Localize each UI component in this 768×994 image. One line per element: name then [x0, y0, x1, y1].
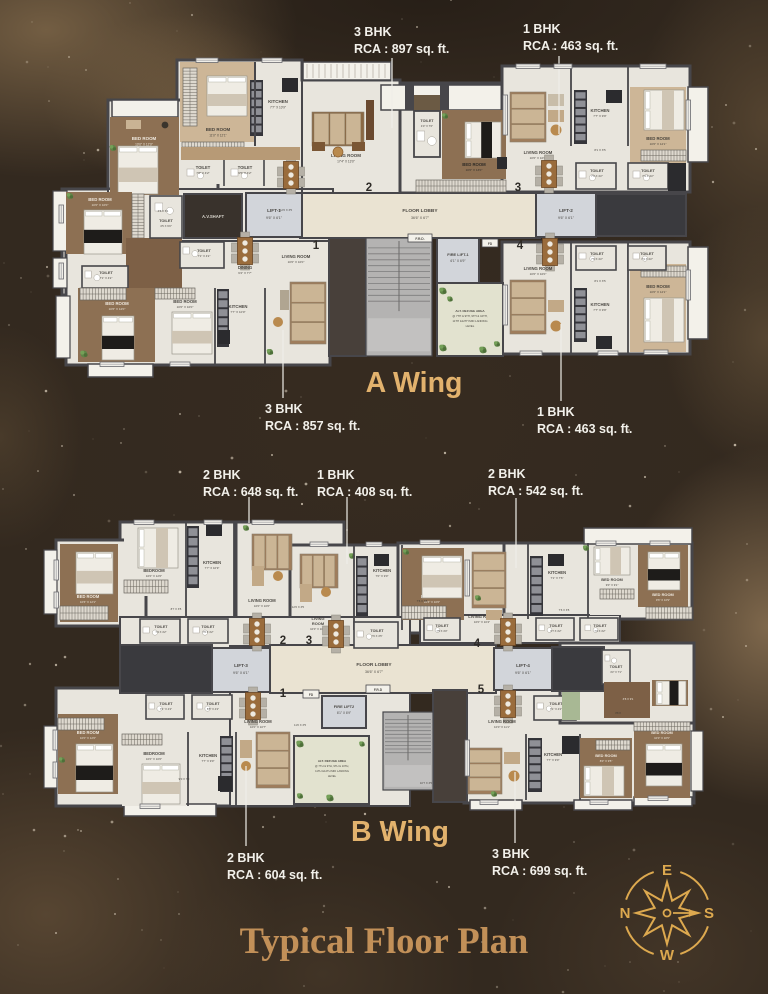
svg-text:7'4 X 4'2": 7'4 X 4'2" [155, 630, 166, 634]
svg-text:7'6 X 3'5: 7'6 X 3'5 [559, 608, 570, 612]
svg-text:LIVING ROOM: LIVING ROOM [244, 719, 272, 724]
svg-text:FIRE LIFT-1: FIRE LIFT-1 [447, 252, 469, 257]
svg-text:8'1 X 3'5: 8'1 X 3'5 [594, 148, 606, 152]
svg-text:S: S [704, 905, 714, 922]
svg-text:BED ROOM: BED ROOM [646, 136, 670, 141]
svg-text:1: 1 [313, 240, 320, 252]
svg-text:7'7" X 10'9": 7'7" X 10'9" [205, 566, 220, 570]
svg-text:LIFT-4: LIFT-4 [516, 663, 530, 668]
svg-text:9'6" X 6'1": 9'6" X 6'1" [515, 671, 532, 675]
svg-text:6'1" X 6'9": 6'1" X 6'9" [337, 711, 351, 715]
svg-text:1 BHK: 1 BHK [537, 405, 575, 419]
svg-text:DINING: DINING [238, 265, 252, 270]
svg-text:TOILET: TOILET [590, 168, 604, 173]
svg-text:Typical Floor Plan: Typical Floor Plan [240, 920, 529, 961]
svg-text:TOILET: TOILET [435, 624, 449, 628]
svg-text:LIFT-3: LIFT-3 [234, 663, 248, 668]
svg-text:BED ROOM: BED ROOM [652, 592, 673, 597]
svg-text:7'7" X 9'0": 7'7" X 9'0" [201, 759, 214, 763]
svg-text:LIVING ROOM: LIVING ROOM [524, 150, 553, 155]
svg-text:KITCHEN: KITCHEN [229, 304, 248, 309]
svg-text:LIVING ROOM: LIVING ROOM [524, 266, 553, 271]
svg-text:7'7" X 9'9": 7'7" X 9'9" [593, 308, 606, 312]
svg-text:4: 4 [474, 638, 481, 650]
svg-text:7'7" X 10'9": 7'7" X 10'9" [270, 106, 286, 110]
svg-text:6'7 X 4'2": 6'7 X 4'2" [550, 629, 561, 633]
svg-text:BED ROOM: BED ROOM [646, 284, 670, 289]
svg-text:7'0" X 9'0": 7'0" X 9'0" [375, 574, 388, 578]
svg-text:2: 2 [366, 182, 372, 194]
svg-text:ALT. REFUGE AREA: ALT. REFUGE AREA [318, 759, 347, 763]
svg-text:FD: FD [309, 693, 314, 697]
svg-text:4'3" X 7'1": 4'3" X 7'1" [610, 670, 622, 674]
svg-text:TOILET: TOILET [206, 702, 220, 706]
svg-text:3 BHK: 3 BHK [492, 847, 530, 861]
svg-text:TOILET: TOILET [370, 629, 384, 633]
svg-text:10'0" X 10'5": 10'0" X 10'5" [654, 736, 670, 740]
svg-text:7'6 X 3'5: 7'6 X 3'5 [417, 599, 428, 603]
svg-text:TOILET: TOILET [590, 251, 604, 256]
svg-text:BED ROOM: BED ROOM [105, 301, 129, 306]
svg-text:RCA : 857 sq. ft.: RCA : 857 sq. ft. [265, 419, 360, 433]
svg-text:RCA : 542 sq. ft.: RCA : 542 sq. ft. [488, 484, 583, 498]
svg-text:RCA : 699 sq. ft.: RCA : 699 sq. ft. [492, 864, 587, 878]
svg-text:BED ROOM: BED ROOM [595, 753, 616, 758]
svg-text:2: 2 [280, 635, 286, 647]
svg-text:1 BHK: 1 BHK [317, 468, 355, 482]
svg-text:10'6" X 12'1": 10'6" X 12'1" [80, 600, 96, 604]
svg-text:TOILET: TOILET [238, 165, 253, 170]
svg-text:BED ROOM: BED ROOM [206, 127, 231, 132]
svg-text:TOILET: TOILET [549, 702, 563, 706]
svg-text:KITCHEN: KITCHEN [548, 570, 566, 575]
svg-text:9'0" X 9'1": 9'0" X 9'1" [606, 583, 619, 587]
svg-text:3: 3 [306, 635, 312, 647]
svg-text:KITCHEN: KITCHEN [373, 568, 391, 573]
svg-text:7'6 X 4'2": 7'6 X 4'2" [202, 630, 213, 634]
svg-text:10'0" X 10'0": 10'0" X 10'0" [530, 272, 547, 276]
svg-text:3 BHK: 3 BHK [265, 402, 303, 416]
svg-text:8'1 X 3'5: 8'1 X 3'5 [594, 279, 606, 283]
svg-text:5: 5 [478, 684, 485, 696]
svg-text:10'0" X 12'0": 10'0" X 12'0" [80, 736, 96, 740]
svg-text:RCA : 463 sq. ft.: RCA : 463 sq. ft. [523, 39, 618, 53]
svg-text:KITCHEN: KITCHEN [544, 752, 562, 757]
svg-text:10'0" X 10'4": 10'0" X 10'4" [474, 620, 490, 624]
svg-text:A Wing: A Wing [366, 367, 463, 399]
svg-text:TOILET: TOILET [549, 624, 563, 628]
svg-text:@ 7TH & 9TH, 9TH & 10TH,: @ 7TH & 9TH, 9TH & 10TH, [315, 764, 349, 768]
svg-text:7'2 X 4'2": 7'2 X 4'2" [594, 629, 605, 633]
svg-text:10'0" X 12'1": 10'0" X 12'1" [650, 290, 667, 294]
svg-text:7'0" X 4'2": 7'0" X 4'2" [196, 171, 209, 175]
svg-text:6'1" X 6'9": 6'1" X 6'9" [450, 259, 466, 263]
svg-text:KITCHEN: KITCHEN [591, 302, 610, 307]
svg-text:KITCHEN: KITCHEN [268, 99, 288, 104]
svg-text:ALT. REFUGE AREA: ALT. REFUGE AREA [455, 309, 485, 313]
svg-text:9'6" X 6'1": 9'6" X 6'1" [266, 216, 283, 220]
svg-text:7'1" X 4'2": 7'1" X 4'2" [198, 254, 211, 258]
svg-text:7'7" X 9'0": 7'7" X 9'0" [546, 758, 559, 762]
svg-text:10'0" X 13'0": 10'0" X 13'0" [466, 168, 483, 172]
svg-text:FD: FD [488, 242, 493, 246]
svg-text:RCA : 648 sq. ft.: RCA : 648 sq. ft. [203, 485, 298, 499]
svg-text:4: 4 [517, 240, 524, 252]
svg-text:TOILET: TOILET [593, 624, 607, 628]
svg-text:36'6" X 6'7": 36'6" X 6'7" [411, 216, 430, 220]
svg-text:B Wing: B Wing [351, 816, 449, 848]
svg-text:10'0" X 12'0": 10'0" X 12'0" [146, 574, 162, 578]
svg-text:11'0 X 3'5: 11'0 X 3'5 [294, 723, 306, 727]
svg-text:LIFT-2: LIFT-2 [559, 208, 573, 213]
svg-text:9'6" X 10'9": 9'6" X 10'9" [656, 598, 670, 602]
svg-text:9'5" X 4'2": 9'5" X 4'2" [238, 171, 251, 175]
svg-text:TOILET: TOILET [610, 665, 623, 669]
svg-text:LIVING ROOM: LIVING ROOM [488, 719, 516, 724]
svg-text:BED ROOM: BED ROOM [601, 577, 622, 582]
svg-text:BED ROOM: BED ROOM [132, 136, 157, 141]
svg-text:9'6" X 6'1": 9'6" X 6'1" [233, 671, 250, 675]
svg-text:7'7" X 10'0": 7'7" X 10'0" [230, 310, 245, 314]
svg-text:TOILET: TOILET [640, 251, 654, 256]
svg-text:TOILET: TOILET [420, 119, 434, 123]
svg-text:BEDROOM: BEDROOM [143, 568, 165, 573]
svg-text:11TH &12TH MID LANDING: 11TH &12TH MID LANDING [452, 319, 487, 323]
svg-text:10'0" X 11'1": 10'0" X 11'1" [494, 725, 510, 729]
svg-text:7'7" X 9'9": 7'7" X 9'9" [593, 114, 606, 118]
svg-text:E: E [662, 862, 672, 879]
svg-text:7'1" X 4'2": 7'1" X 4'2" [160, 707, 172, 711]
svg-text:3'8 X 9'1: 3'8 X 9'1 [623, 697, 634, 701]
svg-text:11TH &12TH MID LANDING: 11TH &12TH MID LANDING [315, 769, 349, 773]
svg-text:4'5 X 6'0": 4'5 X 6'0" [160, 224, 172, 228]
svg-text:KITCHEN: KITCHEN [203, 560, 221, 565]
svg-text:BEDROOM: BEDROOM [143, 751, 165, 756]
svg-text:2 BHK: 2 BHK [488, 467, 526, 481]
svg-text:3: 3 [515, 182, 521, 194]
svg-text:10'0" X 10'0": 10'0" X 10'0" [288, 260, 305, 264]
svg-text:10'7 X 3'5: 10'7 X 3'5 [420, 781, 433, 785]
svg-text:TOILET: TOILET [99, 270, 113, 275]
svg-text:10'0" X 10'0": 10'0" X 10'0" [177, 305, 194, 309]
svg-text:8'5" X 4'2": 8'5" X 4'2" [207, 707, 219, 711]
svg-text:BED ROOM: BED ROOM [88, 197, 112, 202]
svg-text:3 BHK: 3 BHK [354, 25, 392, 39]
svg-text:BED ROOM: BED ROOM [77, 594, 100, 599]
svg-text:10'0" X 10'7": 10'0" X 10'7" [250, 725, 266, 729]
svg-text:9'0 X 7'0: 9'0 X 7'0 [179, 777, 190, 781]
svg-text:10'0" X 10'0": 10'0" X 10'0" [146, 757, 162, 761]
svg-text:10'0" X 12'1": 10'0" X 12'1" [650, 142, 667, 146]
svg-text:6'2" X 7'7": 6'2" X 7'7" [238, 271, 251, 275]
svg-text:RCA : 604 sq. ft.: RCA : 604 sq. ft. [227, 868, 322, 882]
svg-text:LIVING ROOM: LIVING ROOM [282, 254, 311, 259]
svg-text:KITCHEN: KITCHEN [591, 108, 610, 113]
svg-text:17'4" X 13'0": 17'4" X 13'0" [337, 160, 355, 164]
svg-text:10'0" X 10'0": 10'0" X 10'0" [254, 604, 270, 608]
svg-text:TOILET: TOILET [641, 168, 655, 173]
svg-text:TOILET: TOILET [159, 218, 173, 223]
svg-text:F.R.D.: F.R.D. [415, 237, 424, 241]
svg-text:3'8 X: 3'8 X [615, 711, 621, 715]
svg-text:A.V.SHAFT: A.V.SHAFT [202, 214, 225, 219]
svg-text:12'0 X 3'5: 12'0 X 3'5 [280, 208, 293, 212]
svg-text:TOILET: TOILET [154, 625, 168, 629]
svg-text:BED ROOM: BED ROOM [77, 730, 100, 735]
svg-text:N: N [620, 905, 631, 922]
svg-text:4'0" X 7'0": 4'0" X 7'0" [421, 124, 433, 128]
svg-text:4'6 X 6'1: 4'6 X 6'1 [158, 209, 169, 213]
svg-text:FLOOR LOBBY: FLOOR LOBBY [356, 662, 392, 668]
svg-text:TOILET: TOILET [197, 248, 211, 253]
svg-text:FIRE LIFT2: FIRE LIFT2 [334, 704, 355, 709]
svg-text:F.R.D: F.R.D [374, 688, 383, 692]
svg-text:1 BHK: 1 BHK [523, 22, 561, 36]
svg-text:RCA : 897 sq. ft.: RCA : 897 sq. ft. [354, 42, 449, 56]
svg-text:10'0" X 10'0": 10'0" X 10'0" [530, 156, 547, 160]
svg-text:TOILET: TOILET [201, 625, 215, 629]
svg-text:8'0" X 9'5": 8'0" X 9'5" [600, 759, 613, 763]
svg-text:8'7 X 3'5: 8'7 X 3'5 [171, 607, 182, 611]
svg-text:LEVEL: LEVEL [328, 774, 337, 778]
svg-text:ROOM: ROOM [312, 621, 324, 626]
svg-text:LIVING ROOM: LIVING ROOM [248, 598, 276, 603]
svg-text:FLOOR LOBBY: FLOOR LOBBY [402, 208, 438, 214]
svg-text:RCA : 463 sq. ft.: RCA : 463 sq. ft. [537, 422, 632, 436]
svg-text:KITCHEN: KITCHEN [199, 753, 217, 758]
svg-text:9'6" X 6'1": 9'6" X 6'1" [558, 216, 575, 220]
svg-text:7'6 X 4'2": 7'6 X 4'2" [591, 257, 603, 261]
svg-text:TOILET: TOILET [196, 165, 211, 170]
svg-text:7'6 X 4'2": 7'6 X 4'2" [591, 174, 603, 178]
svg-text:12'0 X 3'5: 12'0 X 3'5 [292, 605, 305, 609]
svg-text:RCA : 408 sq. ft.: RCA : 408 sq. ft. [317, 485, 412, 499]
svg-text:7'0 X 4'5": 7'0 X 4'5" [371, 634, 382, 638]
svg-text:2 BHK: 2 BHK [203, 468, 241, 482]
svg-text:36'6" X 6'7": 36'6" X 6'7" [365, 670, 384, 674]
svg-text:W: W [660, 947, 675, 964]
svg-text:7'1" X 4'2": 7'1" X 4'2" [550, 707, 562, 711]
svg-text:7'5 X 4'0": 7'5 X 4'0" [436, 629, 447, 633]
svg-text:1: 1 [280, 688, 287, 700]
svg-text:7'4 X 4'2": 7'4 X 4'2" [642, 174, 654, 178]
svg-text:TOILET: TOILET [159, 702, 173, 706]
svg-text:BED ROOM: BED ROOM [462, 162, 486, 167]
svg-text:7'1" X 4'2": 7'1" X 4'2" [100, 276, 113, 280]
svg-text:11'0" X 12'1": 11'0" X 12'1" [209, 134, 227, 138]
svg-text:7'4 X 4'2": 7'4 X 4'2" [641, 257, 653, 261]
svg-text:LEVEL: LEVEL [466, 324, 475, 328]
svg-text:7'1" X 7'6": 7'1" X 7'6" [550, 576, 563, 580]
svg-text:10'0" X 10'0": 10'0" X 10'0" [92, 203, 109, 207]
svg-text:10'6" X 12'0": 10'6" X 12'0" [109, 307, 126, 311]
svg-text:2 BHK: 2 BHK [227, 851, 265, 865]
svg-text:@ 7TH & 9TH, 9TH & 10TH,: @ 7TH & 9TH, 9TH & 10TH, [452, 314, 488, 318]
svg-text:BED ROOM: BED ROOM [173, 299, 197, 304]
